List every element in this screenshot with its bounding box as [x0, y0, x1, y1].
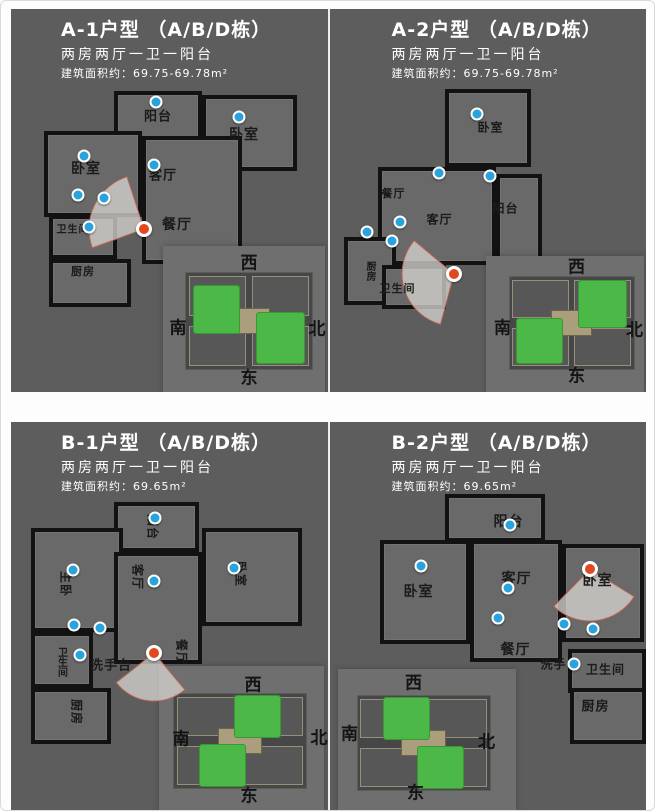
room-label-balcony: 阳台	[492, 200, 518, 217]
highlighted-unit-0	[384, 698, 429, 739]
compass-label-left: 南	[170, 314, 187, 339]
unit-panel-a2: A-2户型 （A/B/D栋） 两房两厅一卫一阳台 建筑面积约：69.75-69.…	[330, 9, 647, 392]
panorama-hotspot-dot-1[interactable]	[67, 564, 80, 577]
compass-label-right: 北	[626, 316, 643, 341]
room-label-bathroom: 卫生间	[380, 280, 416, 296]
unit-subtitle: 两房两厅一卫一阳台	[392, 459, 602, 477]
siteplan-map	[186, 273, 312, 369]
panorama-hotspot-dot-5[interactable]	[586, 623, 599, 636]
unit-title: A-1户型 （A/B/D栋）	[61, 17, 271, 43]
unit-area: 建筑面积约：69.65m²	[392, 480, 602, 494]
unit-area: 建筑面积约：69.75-69.78m²	[61, 67, 271, 81]
panorama-hotspot-dot-6[interactable]	[567, 658, 580, 671]
compass-label-bottom: 东	[568, 362, 585, 387]
unit-subtitle: 两房两厅一卫一阳台	[61, 459, 271, 477]
room-bedroom-right	[562, 544, 644, 642]
compass-label-top: 西	[405, 669, 422, 694]
room-label-bedroom-left: 卧室	[404, 581, 434, 601]
camera-position-dot[interactable]	[146, 645, 162, 661]
panorama-hotspot-dot-1[interactable]	[432, 167, 445, 180]
panorama-hotspot-dot-3[interactable]	[148, 159, 161, 172]
unit-title: B-1户型 （A/B/D栋）	[61, 430, 271, 456]
unit-area: 建筑面积约：69.75-69.78m²	[392, 67, 602, 81]
panorama-hotspot-dot-5[interactable]	[385, 235, 398, 248]
panorama-hotspot-dot-4[interactable]	[68, 619, 81, 632]
highlighted-unit-0	[194, 286, 239, 332]
highlighted-unit-0	[579, 281, 626, 327]
unit-header-a1: A-1户型 （A/B/D栋） 两房两厅一卫一阳台 建筑面积约：69.75-69.…	[61, 17, 271, 81]
unit-subtitle: 两房两厅一卫一阳台	[61, 46, 271, 64]
unit-panel-b1: B-1户型 （A/B/D栋） 两房两厅一卫一阳台 建筑面积约：69.65m² 阳…	[11, 422, 328, 810]
unit-panel-a1: A-1户型 （A/B/D栋） 两房两厅一卫一阳台 建筑面积约：69.75-69.…	[11, 9, 328, 392]
panorama-hotspot-dot-6[interactable]	[74, 649, 87, 662]
highlighted-unit-1	[200, 745, 245, 786]
unit-panel-b2: B-2户型 （A/B/D栋） 两房两厅一卫一阳台 建筑面积约：69.65m² 阳…	[330, 422, 647, 810]
panorama-hotspot-dot-4[interactable]	[360, 226, 373, 239]
room-living-room	[142, 136, 242, 264]
unit-title: B-2户型 （A/B/D栋）	[392, 430, 602, 456]
panorama-hotspot-dot-5[interactable]	[94, 622, 107, 635]
camera-position-dot[interactable]	[582, 561, 598, 577]
room-label-living-room: 客厅	[130, 564, 147, 590]
highlighted-unit-1	[257, 313, 305, 363]
unit-title: A-2户型 （A/B/D栋）	[392, 17, 602, 43]
room-label-kitchen: 厨房	[71, 263, 95, 279]
room-label-washbasin: 洗手台	[90, 655, 132, 674]
panorama-hotspot-dot-1[interactable]	[414, 560, 427, 573]
room-label-kitchen: 厨房	[362, 261, 377, 281]
compass-label-right: 北	[309, 315, 326, 340]
unit-subtitle: 两房两厅一卫一阳台	[392, 46, 602, 64]
panorama-hotspot-dot-0[interactable]	[149, 512, 162, 525]
room-label-dining-room: 餐厅	[501, 639, 531, 659]
compass-label-bottom: 东	[241, 782, 258, 807]
room-label-balcony: 阳台	[144, 106, 172, 125]
compass-label-right: 北	[478, 728, 495, 753]
room-bedroom	[202, 528, 302, 626]
room-label-dining-room: 餐厅	[174, 639, 191, 665]
compass-label-right: 北	[311, 724, 328, 749]
panorama-hotspot-dot-3[interactable]	[228, 562, 241, 575]
room-label-kitchen: 厨房	[581, 696, 609, 715]
panorama-hotspot-dot-4[interactable]	[557, 618, 570, 631]
room-label-washbasin: 洗手	[540, 656, 566, 673]
highlighted-unit-1	[517, 319, 562, 363]
compass-label-top: 西	[241, 249, 258, 274]
siteplan-map	[358, 696, 490, 790]
panel-bottom-units-b: B-1户型 （A/B/D栋） 两房两厅一卫一阳台 建筑面积约：69.65m² 阳…	[11, 422, 646, 810]
unit-area: 建筑面积约：69.65m²	[61, 480, 271, 494]
room-label-bedroom-right: 卧室	[229, 124, 259, 144]
room-label-kitchen: 厨房	[69, 699, 86, 725]
unit-header-b2: B-2户型 （A/B/D栋） 两房两厅一卫一阳台 建筑面积约：69.65m²	[392, 430, 602, 494]
room-balcony	[496, 174, 542, 266]
camera-position-dot[interactable]	[446, 266, 462, 282]
room-master-bedroom	[31, 528, 123, 632]
siteplan-map	[510, 277, 634, 369]
siteplan-map	[174, 694, 306, 788]
panorama-hotspot-dot-0[interactable]	[150, 96, 163, 109]
room-label-living-room: 客厅	[426, 211, 452, 228]
panorama-hotspot-dot-2[interactable]	[483, 170, 496, 183]
highlighted-unit-0	[235, 696, 280, 737]
panorama-hotspot-dot-0[interactable]	[470, 108, 483, 121]
panorama-hotspot-dot-2[interactable]	[501, 582, 514, 595]
panorama-hotspot-dot-4[interactable]	[72, 189, 85, 202]
panorama-hotspot-dot-2[interactable]	[148, 575, 161, 588]
compass-label-left: 南	[341, 720, 358, 745]
compass-label-top: 西	[245, 671, 262, 696]
unit-header-a2: A-2户型 （A/B/D栋） 两房两厅一卫一阳台 建筑面积约：69.75-69.…	[392, 17, 602, 81]
panorama-hotspot-dot-2[interactable]	[78, 150, 91, 163]
room-label-bedroom: 卧室	[477, 119, 503, 136]
room-label-bathroom: 卫生间	[54, 647, 69, 677]
panorama-hotspot-dot-3[interactable]	[491, 612, 504, 625]
room-label-bathroom: 卫生间	[586, 661, 625, 678]
room-label-dining-room: 餐厅	[382, 185, 406, 201]
unit-header-b1: B-1户型 （A/B/D栋） 两房两厅一卫一阳台 建筑面积约：69.65m²	[61, 430, 271, 494]
compass-label-bottom: 东	[241, 364, 258, 389]
panorama-hotspot-dot-6[interactable]	[83, 221, 96, 234]
room-label-dining-room: 餐厅	[162, 214, 192, 234]
compass-label-left: 南	[494, 314, 511, 339]
compass-label-left: 南	[173, 725, 190, 750]
page: A-1户型 （A/B/D栋） 两房两厅一卫一阳台 建筑面积约：69.75-69.…	[0, 0, 655, 811]
panorama-hotspot-dot-5[interactable]	[98, 192, 111, 205]
highlighted-unit-1	[418, 747, 463, 788]
camera-position-dot[interactable]	[136, 221, 152, 237]
compass-label-top: 西	[568, 253, 585, 278]
compass-label-bottom: 东	[407, 779, 424, 804]
panorama-hotspot-dot-3[interactable]	[393, 216, 406, 229]
panorama-hotspot-dot-0[interactable]	[503, 519, 516, 532]
panorama-hotspot-dot-1[interactable]	[233, 111, 246, 124]
panel-top-units-a: A-1户型 （A/B/D栋） 两房两厅一卫一阳台 建筑面积约：69.75-69.…	[11, 9, 646, 392]
